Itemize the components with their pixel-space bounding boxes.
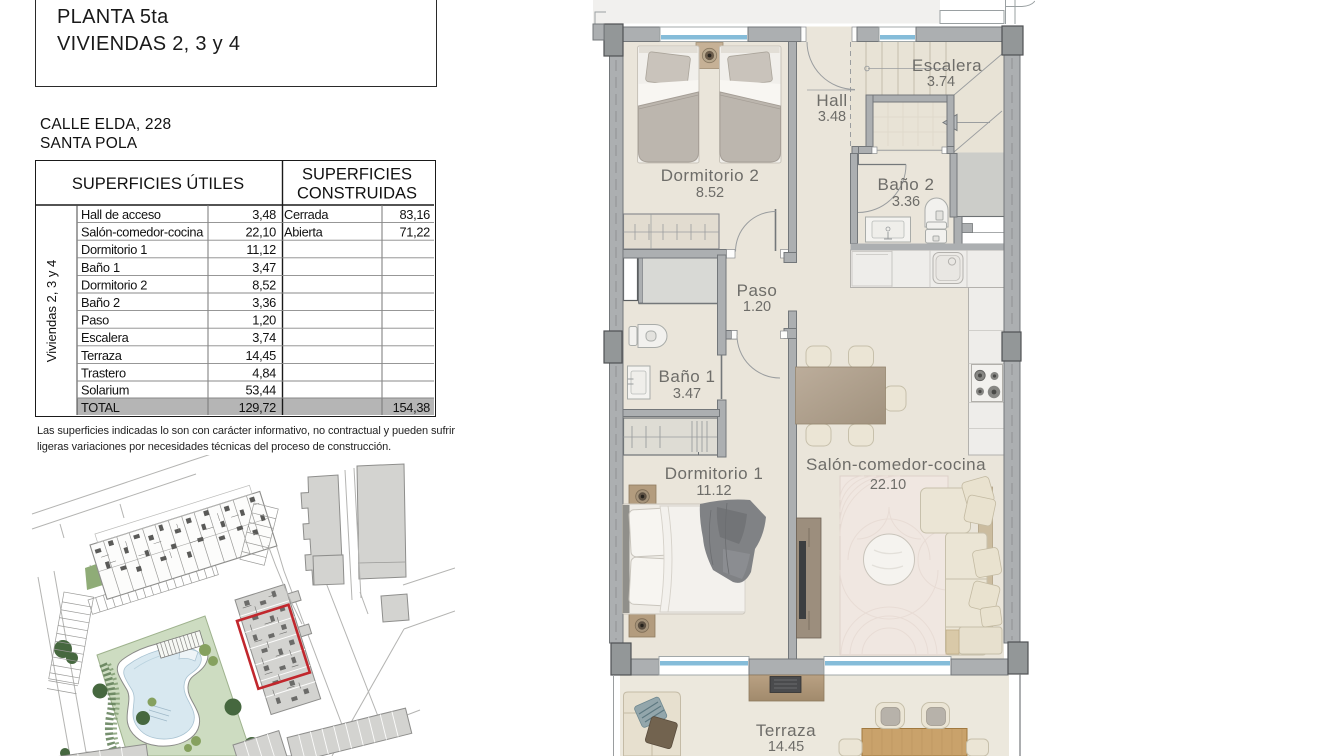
- svg-text:Terraza: Terraza: [756, 721, 816, 740]
- svg-text:53,44: 53,44: [245, 383, 276, 398]
- svg-text:Terraza: Terraza: [81, 348, 123, 363]
- svg-text:Salón-comedor-cocina: Salón-comedor-cocina: [81, 225, 204, 240]
- svg-text:3.36: 3.36: [892, 194, 920, 210]
- svg-text:14,45: 14,45: [245, 348, 276, 363]
- svg-text:8.52: 8.52: [696, 185, 724, 201]
- svg-text:Baño 1: Baño 1: [81, 260, 120, 275]
- svg-text:3.47: 3.47: [673, 386, 701, 402]
- svg-text:CONSTRUIDAS: CONSTRUIDAS: [297, 185, 417, 203]
- svg-text:3,74: 3,74: [252, 330, 276, 345]
- svg-text:Salón-comedor-cocina: Salón-comedor-cocina: [806, 455, 986, 474]
- svg-text:129,72: 129,72: [239, 400, 277, 415]
- svg-text:Dormitorio 2: Dormitorio 2: [81, 277, 147, 292]
- svg-text:22,10: 22,10: [245, 225, 276, 240]
- svg-text:3,36: 3,36: [252, 295, 276, 310]
- svg-text:1.20: 1.20: [743, 299, 771, 315]
- svg-text:Baño 1: Baño 1: [659, 367, 716, 386]
- svg-text:TOTAL: TOTAL: [81, 400, 120, 415]
- svg-text:83,16: 83,16: [399, 207, 430, 222]
- svg-text:Trastero: Trastero: [81, 365, 126, 380]
- svg-text:Dormitorio 1: Dormitorio 1: [665, 464, 764, 483]
- svg-text:11.12: 11.12: [696, 483, 731, 499]
- svg-text:Dormitorio 2: Dormitorio 2: [661, 166, 760, 185]
- svg-text:Solarium: Solarium: [81, 383, 129, 398]
- svg-text:SUPERFICIES: SUPERFICIES: [302, 166, 412, 184]
- svg-text:Cerrada: Cerrada: [284, 207, 329, 222]
- svg-text:22.10: 22.10: [870, 477, 906, 493]
- svg-text:14.45: 14.45: [768, 739, 804, 755]
- svg-text:Baño 2: Baño 2: [81, 295, 120, 310]
- svg-text:1,20: 1,20: [252, 313, 276, 328]
- svg-text:Paso: Paso: [737, 281, 778, 300]
- svg-text:8,52: 8,52: [252, 277, 276, 292]
- svg-text:Escalera: Escalera: [912, 56, 982, 75]
- svg-text:3.48: 3.48: [818, 109, 846, 125]
- svg-text:SUPERFICIES ÚTILES: SUPERFICIES ÚTILES: [72, 174, 244, 193]
- svg-text:Abierta: Abierta: [284, 225, 324, 240]
- svg-text:Escalera: Escalera: [81, 330, 130, 345]
- svg-text:154,38: 154,38: [393, 400, 431, 415]
- svg-text:Dormitorio 1: Dormitorio 1: [81, 242, 147, 257]
- svg-text:3.74: 3.74: [927, 74, 955, 90]
- svg-text:Hall: Hall: [816, 91, 847, 110]
- svg-text:4,84: 4,84: [252, 365, 276, 380]
- svg-text:Hall de acceso: Hall de acceso: [81, 207, 161, 222]
- svg-text:71,22: 71,22: [399, 225, 430, 240]
- svg-text:11,12: 11,12: [246, 242, 276, 257]
- svg-text:Viviendas 2, 3 y 4: Viviendas 2, 3 y 4: [44, 260, 59, 362]
- svg-text:3,47: 3,47: [252, 260, 276, 275]
- svg-text:Paso: Paso: [81, 313, 109, 328]
- svg-text:3,48: 3,48: [252, 207, 276, 222]
- svg-text:Baño 2: Baño 2: [878, 175, 935, 194]
